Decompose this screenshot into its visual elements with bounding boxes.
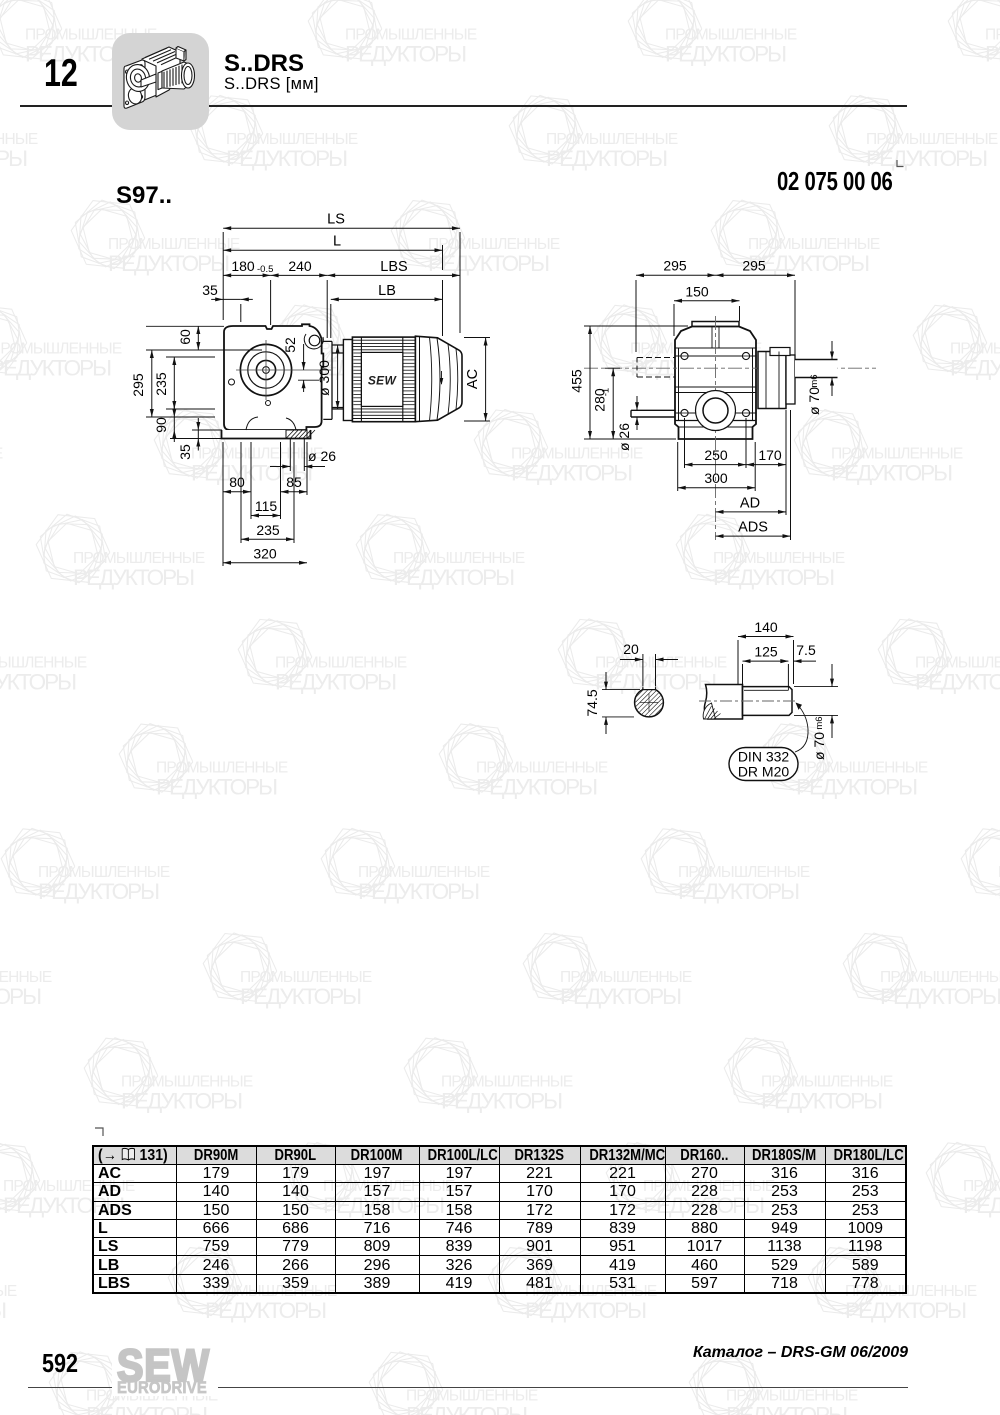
svg-text:35: 35 — [202, 282, 218, 298]
svg-text:m6: m6 — [814, 716, 825, 729]
svg-text:ø 70: ø 70 — [806, 387, 822, 415]
svg-text:SEW: SEW — [368, 374, 398, 388]
svg-text:125: 125 — [754, 644, 778, 660]
svg-text:DIN 332: DIN 332 — [738, 749, 790, 765]
svg-text:7.5: 7.5 — [796, 642, 816, 658]
svg-text:60: 60 — [177, 329, 193, 345]
svg-text:85: 85 — [286, 474, 302, 490]
svg-text:240: 240 — [288, 258, 312, 274]
svg-text:295: 295 — [130, 373, 146, 397]
svg-text:180: 180 — [231, 258, 255, 274]
svg-text:52: 52 — [282, 337, 298, 353]
svg-text:LBS: LBS — [380, 259, 407, 275]
svg-text:LS: LS — [327, 212, 345, 228]
svg-text:295: 295 — [663, 258, 687, 274]
svg-text:235: 235 — [153, 372, 169, 396]
svg-text:235: 235 — [256, 522, 280, 538]
svg-text:ADS: ADS — [738, 520, 768, 536]
svg-text:m6: m6 — [809, 374, 820, 387]
svg-text:35: 35 — [177, 444, 193, 460]
svg-text:ø 70: ø 70 — [811, 732, 827, 760]
svg-text:140: 140 — [754, 619, 778, 635]
svg-text:250: 250 — [704, 447, 728, 463]
svg-text:90: 90 — [153, 417, 169, 433]
svg-text:AD: AD — [740, 495, 760, 511]
svg-text:DR M20: DR M20 — [738, 764, 790, 780]
svg-text:295: 295 — [742, 258, 766, 274]
svg-text:-0.5: -0.5 — [257, 264, 273, 275]
svg-text:-1: -1 — [601, 388, 612, 396]
svg-text:L: L — [333, 234, 341, 250]
svg-text:150: 150 — [685, 283, 709, 299]
svg-text:ø 26: ø 26 — [616, 423, 632, 451]
svg-text:455: 455 — [569, 369, 585, 393]
svg-text:115: 115 — [255, 498, 278, 514]
svg-text:80: 80 — [229, 474, 245, 490]
svg-text:20: 20 — [623, 641, 639, 657]
svg-text:170: 170 — [758, 447, 782, 463]
svg-text:AC: AC — [465, 369, 481, 389]
svg-text:ø 300: ø 300 — [316, 360, 332, 396]
svg-text:74.5: 74.5 — [584, 689, 600, 716]
svg-text:LB: LB — [378, 283, 396, 299]
svg-text:320: 320 — [253, 545, 277, 561]
svg-text:300: 300 — [704, 470, 728, 486]
svg-text:ø 26: ø 26 — [308, 448, 336, 464]
